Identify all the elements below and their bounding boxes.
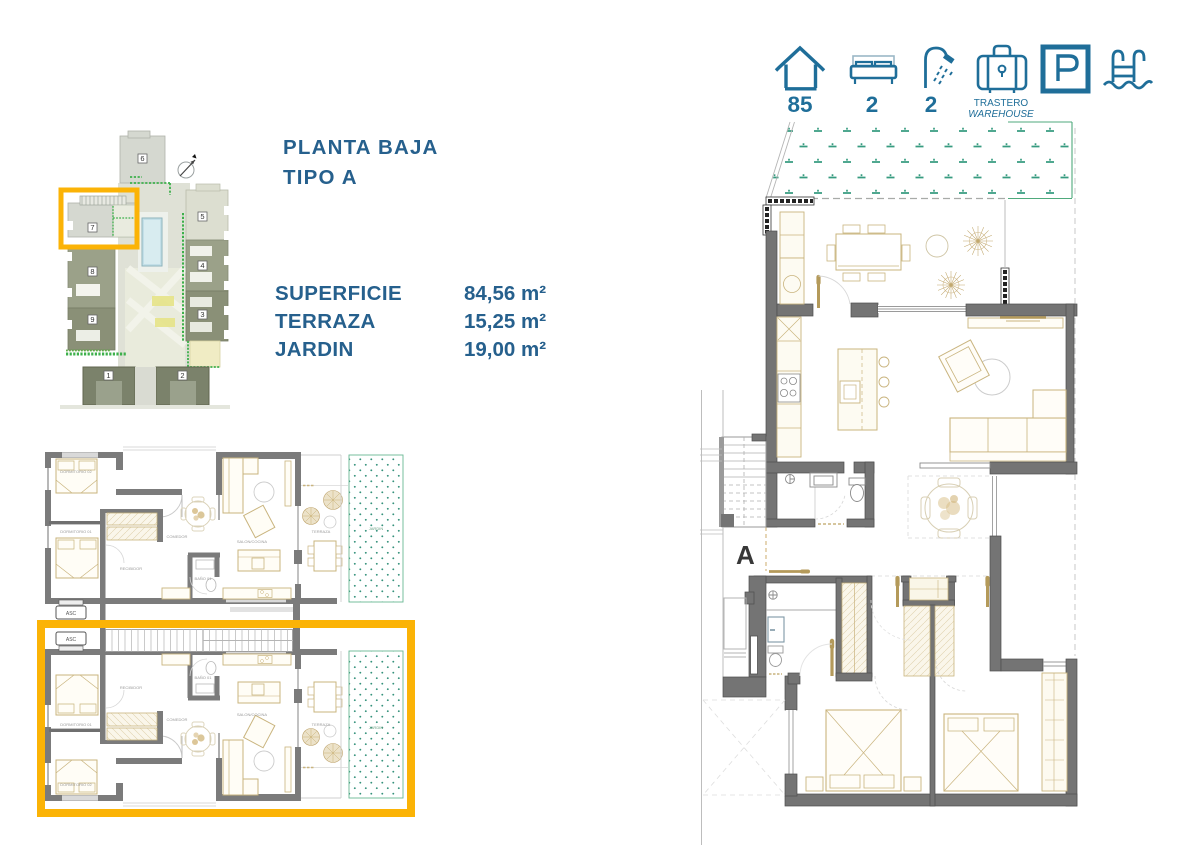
svg-text:SALON/COCINA: SALON/COCINA: [237, 712, 268, 717]
svg-text:5: 5: [200, 212, 204, 221]
svg-text:RECIBIDOR: RECIBIDOR: [120, 685, 142, 690]
svg-text:2: 2: [866, 92, 879, 117]
svg-text:RECIBIDOR: RECIBIDOR: [120, 566, 142, 571]
svg-text:3: 3: [200, 310, 204, 319]
svg-text:DORMITORIO 01: DORMITORIO 01: [60, 529, 92, 534]
svg-text:DORMITORIO 02: DORMITORIO 02: [60, 469, 92, 474]
svg-text:SALON/COCINA: SALON/COCINA: [237, 539, 268, 544]
svg-text:1: 1: [106, 371, 110, 380]
svg-text:19,00 m²: 19,00 m²: [464, 338, 546, 361]
svg-text:7: 7: [90, 223, 94, 232]
svg-text:TERRAZA: TERRAZA: [312, 529, 331, 534]
svg-text:ASC: ASC: [66, 611, 77, 617]
svg-text:85: 85: [787, 92, 812, 117]
svg-text:JARDIN: JARDIN: [275, 338, 354, 361]
svg-text:JARDIN: JARDIN: [369, 526, 384, 531]
svg-text:6: 6: [140, 154, 144, 163]
svg-text:TIPO A: TIPO A: [283, 166, 358, 189]
svg-text:TRASTERO: TRASTERO: [974, 98, 1029, 109]
svg-text:4: 4: [200, 261, 204, 270]
svg-text:BAÑO 01: BAÑO 01: [195, 675, 213, 680]
svg-text:9: 9: [90, 315, 94, 324]
svg-text:WAREHOUSE: WAREHOUSE: [968, 109, 1034, 120]
svg-text:COMEDOR: COMEDOR: [167, 717, 188, 722]
svg-text:A: A: [736, 540, 755, 570]
svg-text:COMEDOR: COMEDOR: [167, 534, 188, 539]
svg-text:PLANTA BAJA: PLANTA BAJA: [283, 136, 439, 159]
svg-text:JARDIN: JARDIN: [369, 725, 384, 730]
svg-text:BAÑO 01: BAÑO 01: [195, 576, 213, 581]
svg-text:SUPERFICIE: SUPERFICIE: [275, 282, 402, 305]
svg-text:2: 2: [925, 92, 938, 117]
svg-text:ASC: ASC: [66, 637, 77, 643]
svg-text:8: 8: [90, 267, 94, 276]
svg-text:TERRAZA: TERRAZA: [312, 722, 331, 727]
svg-text:DORMITORIO 01: DORMITORIO 01: [60, 722, 92, 727]
svg-text:2: 2: [180, 371, 184, 380]
svg-text:TERRAZA: TERRAZA: [275, 310, 376, 333]
svg-text:84,56 m²: 84,56 m²: [464, 282, 546, 305]
svg-text:DORMITORIO 02: DORMITORIO 02: [60, 782, 92, 787]
svg-text:15,25 m²: 15,25 m²: [464, 310, 546, 333]
